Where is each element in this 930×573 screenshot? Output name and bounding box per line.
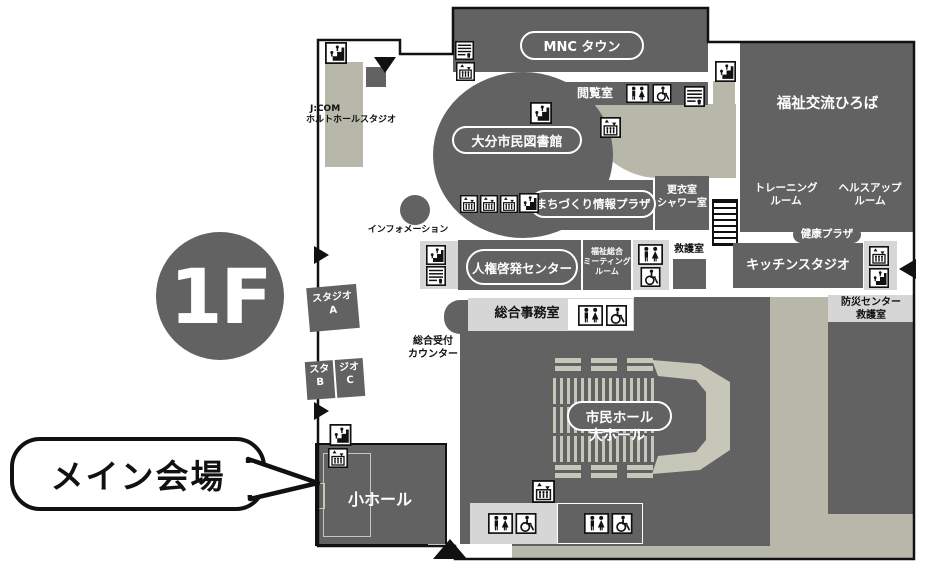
floor-badge: 1F xyxy=(156,232,284,360)
label-jinken-center: 人権啓発センター xyxy=(466,249,578,285)
main-venue-callout-tail xyxy=(244,453,324,505)
label-healthup-room: ヘルスアップ ルーム xyxy=(832,182,908,208)
information-dot xyxy=(400,195,430,225)
room-studio-b: スタ B xyxy=(305,360,336,400)
label-small-hall: 小ホール xyxy=(330,490,430,510)
wheelchair-icon xyxy=(640,267,661,287)
toilet-icon xyxy=(584,513,609,534)
room-studio-a: スタジオ A xyxy=(306,284,360,332)
toilet-icon xyxy=(578,305,603,326)
label-reading-room: 閲覧室 xyxy=(570,86,620,101)
elevator-icon xyxy=(460,195,478,213)
elevator-icon xyxy=(456,62,475,81)
entrance-arrow-right-upper xyxy=(314,246,329,264)
label-big-hall: 大ホール xyxy=(562,428,672,446)
toilet-icon xyxy=(488,513,513,534)
floor-map-1f: MNC タウン 閲覧室 大分市民図書館 J:COM ホルトホールスタジオ インフ… xyxy=(0,0,930,573)
elevator-icon xyxy=(500,195,518,213)
floor-badge-text: 1F xyxy=(170,252,271,341)
stairs-icon xyxy=(426,245,446,265)
stairs-icon xyxy=(325,42,347,64)
room-studio-bc: スタ B ジオ C xyxy=(305,358,366,400)
label-citizen-hall: 市民ホール xyxy=(567,401,672,431)
entrance-arrow-right-lower xyxy=(314,402,329,420)
label-kitchen-studio: キッチンスタジオ xyxy=(733,258,863,274)
label-information: インフォメーション xyxy=(358,225,458,236)
wheelchair-icon xyxy=(651,84,673,103)
stairs-icon xyxy=(530,102,552,124)
label-meeting-room: 福祉総合 ミーティング ルーム xyxy=(583,247,631,277)
elevator-icon xyxy=(480,195,498,213)
wheelchair-icon xyxy=(515,513,537,534)
label-training-room: トレーニング ルーム xyxy=(748,182,824,208)
stairs-icon xyxy=(715,61,736,82)
toilet-icon xyxy=(638,244,663,265)
elevator-icon xyxy=(600,117,621,138)
stairs-icon xyxy=(869,268,889,288)
label-reception: 総合受付 カウンター xyxy=(398,336,468,361)
room-studio-c: ジオ C xyxy=(335,358,366,398)
main-venue-callout-text: メイン会場 xyxy=(51,450,226,498)
wheelchair-icon xyxy=(611,513,633,534)
escalator-icon xyxy=(455,41,474,60)
stairs-icon xyxy=(329,424,352,446)
entrance-arrow-up xyxy=(433,539,467,559)
label-mnc-town: MNC タウン xyxy=(520,31,644,60)
label-bosai-center: 防災センター 救護室 xyxy=(828,297,914,322)
label-first-aid: 救護室 xyxy=(666,244,712,257)
label-library: 大分市民図書館 xyxy=(452,126,582,154)
elevator-icon xyxy=(328,448,348,468)
label-jcom: J:COM ホルトホールスタジオ xyxy=(306,104,398,127)
label-machizukuri: まちづくり情報プラザ xyxy=(530,190,656,218)
entrance-arrow-left xyxy=(899,259,916,279)
label-health-plaza: 健康プラザ xyxy=(793,226,861,243)
entrance-arrow-down xyxy=(374,57,396,73)
wheelchair-icon xyxy=(605,305,628,326)
escalator-icon xyxy=(684,86,705,107)
toilet-icon xyxy=(626,84,649,103)
main-venue-callout: メイン会場 xyxy=(10,437,266,511)
label-office: 総合事務室 xyxy=(472,306,582,322)
elevator-icon xyxy=(532,480,555,503)
label-changing-room: 更衣室 シャワー室 xyxy=(655,185,709,210)
escalator-icon xyxy=(426,266,446,286)
label-welfare-plaza: 福祉交流ひろば xyxy=(745,95,910,113)
stairs-icon xyxy=(519,193,539,213)
elevator-icon xyxy=(869,246,889,266)
